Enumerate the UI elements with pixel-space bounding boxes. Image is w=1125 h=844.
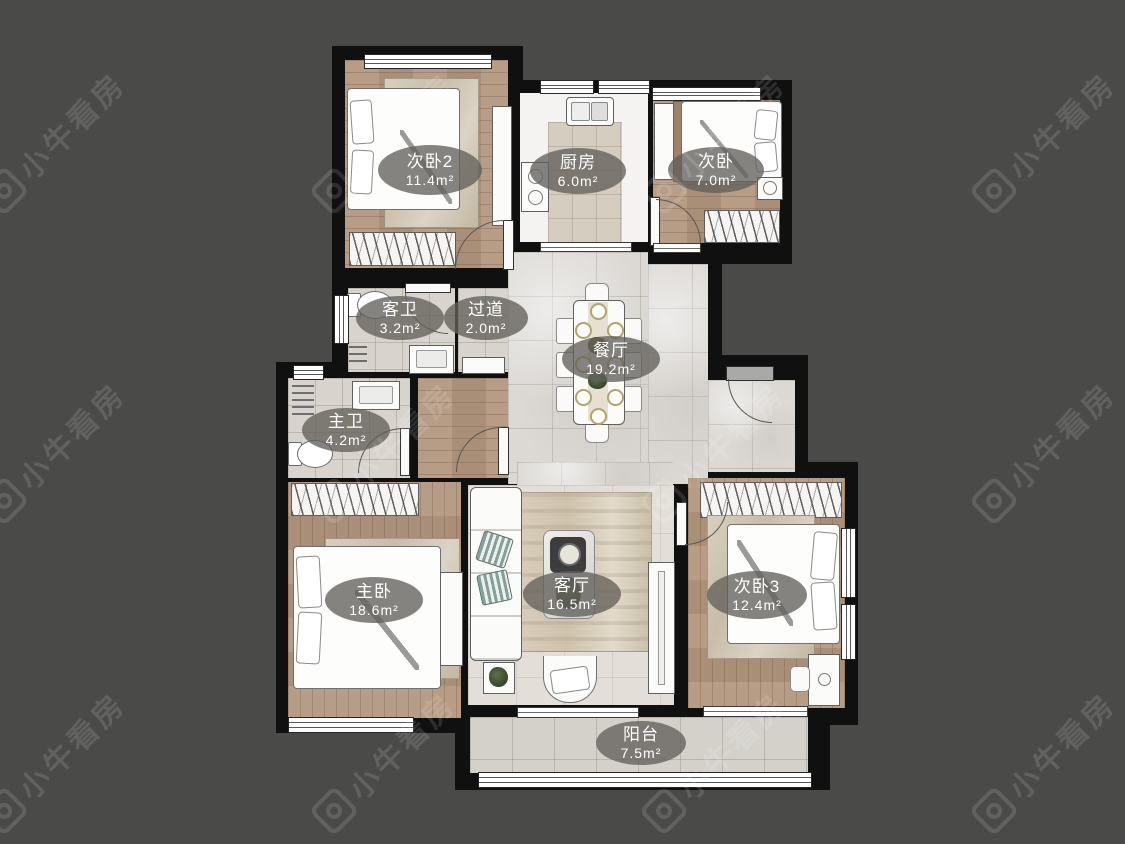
shower-faucet-icon (349, 346, 367, 366)
shower-faucet-icon (292, 385, 314, 417)
pillow (753, 109, 778, 141)
plate (590, 408, 607, 425)
window (288, 717, 414, 733)
window (598, 80, 650, 94)
room-area: 7.0m² (696, 172, 737, 190)
bull-logo-icon (969, 785, 1020, 836)
room-name: 厨房 (560, 152, 596, 173)
sideboard (648, 562, 675, 694)
watermark: 小牛看房 (966, 371, 1124, 529)
room-area: 19.2m² (586, 361, 636, 379)
room-name: 客卫 (382, 299, 418, 320)
watermark-text: 小牛看房 (997, 681, 1124, 808)
balcony-sliding-door (517, 707, 639, 718)
sideboard-line (658, 571, 665, 685)
sink-basin (571, 102, 590, 121)
watermark: 小牛看房 (0, 61, 134, 219)
room-label: 次卧3 12.4m² (707, 571, 807, 619)
bathroom-sink (352, 381, 400, 410)
watermark-text: 小牛看房 (7, 61, 134, 188)
window (841, 528, 856, 598)
pillow (810, 581, 837, 631)
pillow (550, 665, 591, 694)
bathroom-sink (409, 345, 454, 374)
watermark-text: 小牛看房 (7, 681, 134, 808)
room-name: 主卫 (328, 411, 364, 432)
cabinet (462, 357, 505, 374)
bull-logo-icon (0, 475, 30, 526)
pillow (349, 99, 374, 144)
room-name: 餐厅 (593, 340, 629, 361)
basin (359, 386, 393, 404)
bull-logo-icon (969, 475, 1020, 526)
desk-lamp-icon (818, 673, 831, 686)
room-label: 厨房 6.0m² (530, 148, 626, 194)
room-label: 客卫 3.2m² (356, 296, 444, 340)
floor-plan-canvas: 次卧2 11.4m² 厨房 6.0m² 次卧 7.0m² 客卫 3.2m² 过道… (0, 0, 1125, 844)
watermark: 小牛看房 (966, 681, 1124, 839)
pillow (810, 531, 838, 581)
room-area: 4.2m² (326, 432, 367, 450)
watermark: 小牛看房 (0, 681, 134, 839)
room-area: 2.0m² (466, 320, 507, 338)
room-name: 客厅 (554, 575, 590, 596)
room-dining (517, 462, 673, 485)
wardrobe (349, 232, 456, 266)
dining-chair (585, 423, 609, 443)
window (478, 772, 812, 788)
room-area: 12.4m² (732, 597, 782, 615)
dining-chair (623, 386, 642, 412)
burner (528, 190, 543, 205)
bull-logo-icon (0, 165, 30, 216)
room-label: 过道 2.0m² (444, 296, 528, 340)
bull-logo-icon (309, 785, 360, 836)
watermark-text: 小牛看房 (997, 371, 1124, 498)
pillow (296, 555, 323, 608)
plate (590, 303, 607, 320)
bull-logo-icon (0, 785, 30, 836)
room-label: 客厅 16.5m² (523, 571, 621, 617)
room-name: 阳台 (623, 724, 659, 745)
window-seat (440, 572, 463, 666)
kitchen-sink (566, 97, 614, 126)
room-area: 16.5m² (547, 596, 597, 614)
plate (575, 322, 592, 339)
room-name: 主卧 (356, 581, 392, 602)
bull-logo-icon (639, 785, 690, 836)
room-area: 11.4m² (406, 172, 455, 190)
washer-drum (763, 181, 777, 195)
wardrobe (291, 483, 419, 516)
room-name: 次卧3 (734, 576, 780, 597)
window (334, 295, 349, 344)
pillow (296, 611, 323, 664)
window (652, 87, 761, 101)
watermark: 小牛看房 (966, 61, 1124, 219)
desk-chair (790, 666, 810, 692)
room-name: 过道 (468, 299, 504, 320)
room-label: 次卧2 11.4m² (378, 145, 482, 195)
room-area: 6.0m² (558, 173, 599, 191)
plant (489, 667, 508, 687)
room-label: 阳台 7.5m² (596, 721, 686, 765)
plate (607, 389, 624, 406)
threshold (653, 243, 701, 253)
window (293, 365, 324, 380)
room-label: 次卧 7.0m² (668, 147, 764, 193)
bull-logo-icon (969, 165, 1020, 216)
door-leaf (503, 220, 514, 270)
plate (575, 389, 592, 406)
watermark-text: 小牛看房 (997, 61, 1124, 188)
room-label: 主卫 4.2m² (302, 408, 390, 452)
desk (808, 654, 840, 706)
pillow (350, 149, 374, 194)
plant-pot (483, 662, 515, 694)
balcony-sliding-door (703, 706, 808, 717)
room-area: 18.6m² (349, 602, 399, 620)
room-label: 餐厅 19.2m² (562, 336, 660, 382)
room-area: 7.5m² (621, 745, 662, 763)
accent-cushion (476, 569, 513, 606)
room-label: 主卧 18.6m² (325, 577, 423, 623)
window (364, 54, 492, 69)
window-seat (492, 106, 512, 226)
speaker-icon (558, 543, 581, 566)
room-name: 次卧2 (407, 151, 453, 172)
kitchen-sliding-door (540, 242, 632, 252)
room-dining (648, 264, 708, 484)
room-area: 3.2m² (380, 320, 421, 338)
room-name: 次卧 (698, 151, 734, 172)
watermark-text: 小牛看房 (7, 371, 134, 498)
watermark: 小牛看房 (0, 371, 134, 529)
basin (416, 350, 447, 368)
sink-basin (591, 102, 608, 121)
wardrobe (704, 210, 780, 243)
washing-machine-icon (757, 177, 783, 200)
window (540, 80, 594, 94)
window (841, 604, 856, 660)
